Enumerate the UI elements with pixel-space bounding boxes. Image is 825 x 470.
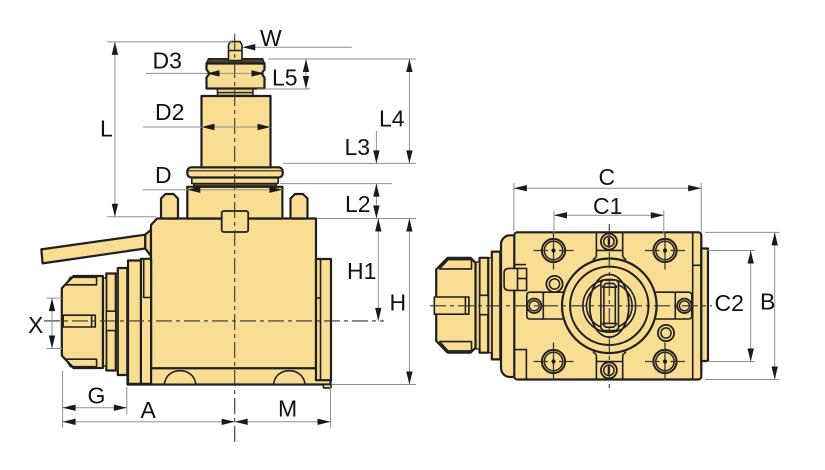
svg-text:C2: C2	[715, 290, 744, 316]
svg-text:L5: L5	[272, 65, 298, 91]
svg-text:X: X	[28, 312, 43, 338]
svg-text:G: G	[88, 383, 106, 409]
svg-text:D2: D2	[155, 99, 184, 125]
svg-text:H: H	[390, 290, 407, 316]
svg-text:B: B	[760, 289, 775, 315]
svg-text:D: D	[155, 162, 172, 188]
svg-text:L3: L3	[345, 134, 371, 160]
svg-text:L4: L4	[379, 106, 405, 132]
svg-text:C1: C1	[593, 193, 622, 219]
svg-text:C: C	[599, 164, 616, 190]
svg-text:D3: D3	[153, 48, 182, 74]
svg-text:L2: L2	[345, 191, 371, 217]
svg-text:A: A	[141, 397, 157, 423]
svg-text:L: L	[100, 116, 113, 142]
svg-text:M: M	[278, 396, 297, 422]
svg-text:H1: H1	[347, 258, 376, 284]
svg-text:W: W	[260, 25, 282, 51]
